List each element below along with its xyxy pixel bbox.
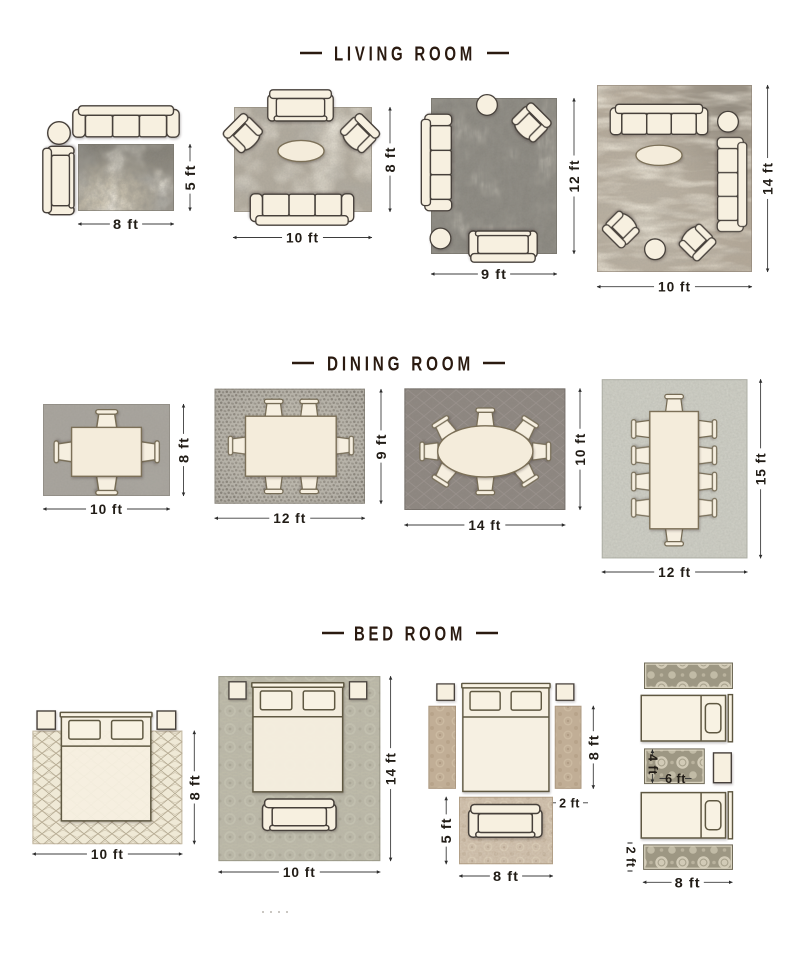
svg-text:14 ft: 14 ft [383, 752, 399, 785]
svg-text:8 ft: 8 ft [493, 868, 519, 884]
svg-text:10 ft: 10 ft [90, 501, 123, 517]
svg-text:9 ft: 9 ft [373, 434, 389, 460]
svg-text:10 ft: 10 ft [286, 230, 319, 246]
svg-text:10 ft: 10 ft [91, 846, 124, 862]
svg-text:8 ft: 8 ft [186, 774, 202, 800]
svg-text:6 ft: 6 ft [665, 772, 686, 786]
svg-text:2 ft: 2 ft [624, 847, 638, 868]
svg-text:DINING ROOM: DINING ROOM [327, 354, 474, 376]
svg-text:12 ft: 12 ft [658, 564, 691, 580]
svg-text:9 ft: 9 ft [481, 266, 507, 282]
svg-text:BED ROOM: BED ROOM [354, 624, 466, 646]
svg-text:8 ft: 8 ft [382, 147, 398, 173]
svg-text:12 ft: 12 ft [566, 160, 582, 193]
svg-text:12 ft: 12 ft [273, 510, 306, 526]
svg-text:8 ft: 8 ft [113, 216, 139, 232]
svg-text:10 ft: 10 ft [658, 279, 691, 295]
svg-text:14 ft: 14 ft [760, 162, 776, 195]
svg-text:15 ft: 15 ft [753, 452, 769, 485]
svg-text:LIVING ROOM: LIVING ROOM [334, 44, 476, 66]
svg-text:10 ft: 10 ft [572, 433, 588, 466]
svg-text:2 ft: 2 ft [559, 797, 580, 811]
svg-text:8 ft: 8 ft [585, 734, 601, 760]
svg-text:10 ft: 10 ft [283, 864, 316, 880]
svg-text:8 ft: 8 ft [675, 874, 701, 890]
svg-text:8 ft: 8 ft [176, 437, 192, 463]
svg-text:14 ft: 14 ft [468, 517, 501, 533]
svg-text:5 ft: 5 ft [182, 165, 198, 191]
svg-text:4 ft: 4 ft [646, 754, 660, 775]
svg-text:5 ft: 5 ft [438, 818, 454, 844]
